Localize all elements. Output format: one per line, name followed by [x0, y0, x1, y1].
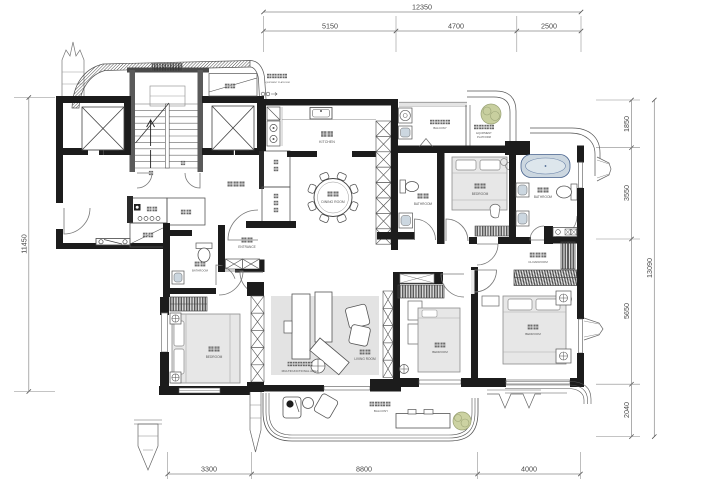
svg-text:PLATFORM: PLATFORM	[477, 135, 491, 139]
svg-text:BEDROOM: BEDROOM	[472, 192, 489, 196]
svg-text:2500: 2500	[541, 22, 557, 31]
svg-text:MULTIFUNCTIONAL AREA: MULTIFUNCTIONAL AREA	[282, 369, 319, 373]
svg-text:4700: 4700	[448, 22, 464, 31]
svg-text:1850: 1850	[622, 116, 631, 132]
svg-text:3300: 3300	[201, 465, 217, 474]
svg-text:EQUIPMENT: EQUIPMENT	[476, 131, 492, 135]
svg-text:KITCHEN: KITCHEN	[319, 140, 335, 144]
svg-text:11450: 11450	[20, 234, 29, 253]
svg-text:BATHROOM: BATHROOM	[534, 195, 553, 199]
svg-text:BEDROOM: BEDROOM	[432, 350, 448, 354]
svg-text:BEDROOM: BEDROOM	[206, 355, 223, 359]
svg-text:DINING ROOM: DINING ROOM	[321, 200, 345, 204]
svg-text:4000: 4000	[521, 465, 537, 474]
svg-text:BATHROOM: BATHROOM	[192, 269, 209, 273]
svg-text:EQUIPMENT PLATFORM: EQUIPMENT PLATFORM	[264, 81, 289, 84]
svg-text:BALCONY: BALCONY	[374, 409, 388, 413]
svg-text:8800: 8800	[356, 465, 372, 474]
svg-text:5150: 5150	[322, 22, 338, 31]
svg-text:12350: 12350	[412, 3, 432, 12]
svg-text:ENTRANCE: ENTRANCE	[238, 245, 256, 249]
svg-text:13090: 13090	[645, 258, 654, 278]
svg-text:3550: 3550	[622, 185, 631, 201]
svg-text:2040: 2040	[622, 402, 631, 418]
svg-text:BEDROOM: BEDROOM	[525, 332, 541, 336]
svg-text:BALCONY: BALCONY	[433, 126, 447, 130]
svg-text:LIVING ROOM: LIVING ROOM	[354, 357, 376, 361]
svg-text:BATHROOM: BATHROOM	[414, 202, 433, 206]
svg-text:5650: 5650	[622, 303, 631, 319]
svg-text:CLOAKROOM: CLOAKROOM	[528, 260, 548, 264]
